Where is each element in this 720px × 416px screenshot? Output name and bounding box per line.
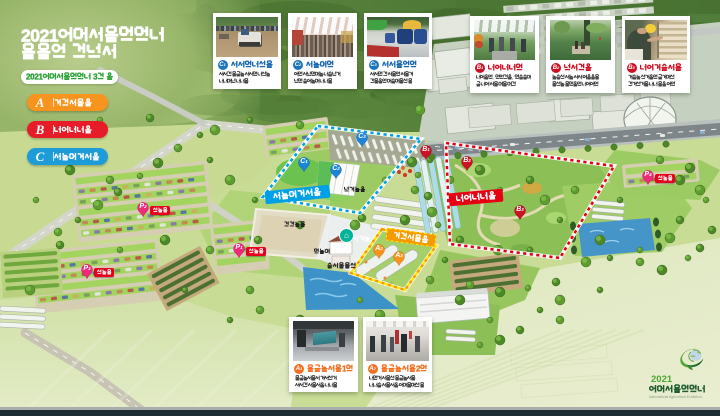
svg-text:1: 1	[49, 25, 59, 45]
svg-text:3: 3	[93, 72, 98, 81]
svg-text:1: 1	[38, 72, 43, 81]
